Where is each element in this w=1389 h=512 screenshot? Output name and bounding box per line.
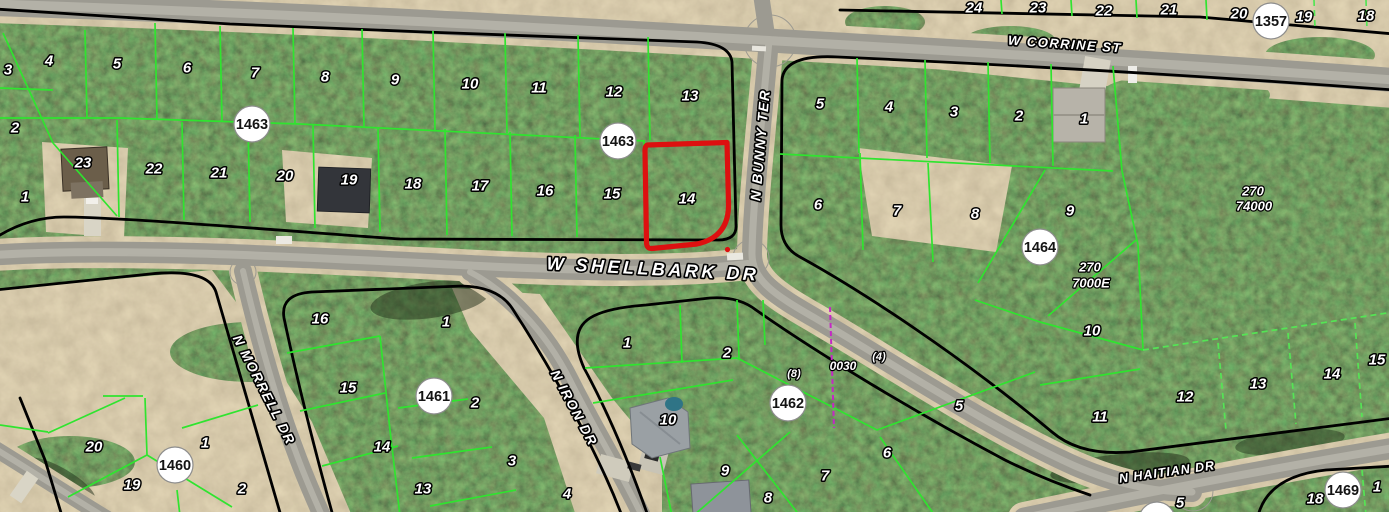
plat-marker-1462[interactable]: 1462 — [770, 385, 806, 421]
lot-number: 23 — [74, 155, 92, 172]
lot-number: 21 — [1160, 2, 1178, 19]
lot-number: 2 — [470, 395, 480, 412]
lot-number: 19 — [124, 477, 141, 494]
lot-number: 21 — [210, 165, 228, 182]
lot-number: 7 — [251, 65, 260, 82]
lot-number: 7 — [821, 468, 830, 485]
lot-number: 23 — [1029, 0, 1047, 17]
parcel-annotation: (4) — [872, 351, 886, 363]
lot-number: 15 — [604, 186, 621, 203]
plat-marker-label: 1462 — [772, 396, 804, 412]
lot-number: 10 — [1084, 323, 1101, 340]
lot-number: 8 — [764, 490, 773, 507]
lot-number: 4 — [884, 99, 894, 116]
lot-number: 13 — [415, 481, 432, 498]
lot-number: 16 — [312, 311, 329, 328]
lot-number: 22 — [1095, 3, 1113, 20]
plat-marker-label: 1464 — [1024, 240, 1056, 256]
lot-number: 12 — [1177, 389, 1194, 406]
lot-number: 13 — [1250, 376, 1267, 393]
lot-number: 1 — [1373, 479, 1381, 496]
plat-marker-label: 1469 — [1327, 483, 1359, 499]
lot-number: 17 — [472, 178, 489, 195]
parked-car — [276, 236, 292, 244]
lot-number: 13 — [682, 88, 699, 105]
lot-number: 12 — [606, 84, 623, 101]
lot-number: 8 — [321, 69, 330, 86]
plat-marker-1460[interactable]: 1460 — [157, 447, 193, 483]
lot-number: 15 — [1369, 352, 1386, 369]
lot-number: 1 — [21, 189, 29, 206]
parcel-annotation: (8) — [787, 368, 801, 380]
lot-number: 11 — [1092, 409, 1108, 426]
plat-marker-1464[interactable]: 1464 — [1022, 229, 1058, 265]
lot-number: 2 — [10, 120, 20, 137]
plat-marker-label: 1463 — [236, 117, 268, 133]
lot-number: 20 — [276, 168, 294, 185]
plat-marker-label: 1460 — [159, 458, 191, 474]
lot-number: 5 — [955, 398, 964, 415]
parcel-annotation: 0030 — [830, 359, 857, 373]
lot-number: 5 — [816, 96, 825, 113]
parcel-map-canvas[interactable]: W CORRINE STN BUNNY TERW SHELLBARK DRN M… — [0, 0, 1389, 512]
lot-number: 20 — [1230, 6, 1248, 23]
lot-number: 10 — [462, 76, 479, 93]
house-south — [691, 480, 751, 512]
plat-marker-1461[interactable]: 1461 — [416, 378, 452, 414]
lot-number: 18 — [1358, 8, 1375, 25]
parcel-corner-dot — [725, 247, 730, 252]
lot-number: 24 — [965, 0, 983, 17]
parked-truck — [1128, 66, 1137, 83]
lot-number: 14 — [679, 191, 696, 208]
lot-number: 4 — [44, 53, 54, 70]
pavement-mark — [727, 253, 743, 261]
lot-number: 6 — [883, 445, 892, 462]
lot-number: 1 — [1080, 111, 1088, 128]
lot-number: 18 — [1307, 491, 1324, 508]
lot-number: 11 — [531, 80, 547, 97]
plat-marker-1463[interactable]: 1463 — [234, 106, 270, 142]
lot-number: 2 — [1014, 108, 1024, 125]
lot-number: 9 — [1066, 203, 1075, 220]
lot-number: 1 — [442, 314, 450, 331]
lot-number: 6 — [183, 60, 192, 77]
lot-number: 3 — [950, 104, 959, 121]
lot-number: 1 — [623, 335, 631, 352]
lot-number: 2 — [722, 345, 732, 362]
lot-number: 20 — [85, 439, 103, 456]
plat-marker-label: 1461 — [418, 389, 450, 405]
lot-number: 5 — [1176, 495, 1185, 512]
map-wrap: W CORRINE STN BUNNY TERW SHELLBARK DRN M… — [0, 0, 1389, 512]
lot-number: 10 — [660, 412, 677, 429]
lot-number: 4 — [562, 486, 572, 503]
parcel-annotation: 270 — [1241, 184, 1264, 199]
lot-number: 14 — [1324, 366, 1341, 383]
lot-number: 5 — [113, 56, 122, 73]
pavement-mark — [752, 46, 766, 52]
lot-number: 9 — [391, 72, 400, 89]
lot-number: 14 — [374, 439, 391, 456]
lot-number: 15 — [340, 380, 357, 397]
lot-number: 7 — [893, 203, 902, 220]
lot-number: 19 — [1296, 9, 1313, 26]
plat-marker-label: 1463 — [602, 134, 634, 150]
swimming-pool — [665, 397, 683, 411]
lot-number: 16 — [537, 183, 554, 200]
lot-number: 6 — [814, 197, 823, 214]
lot-number: 8 — [971, 206, 980, 223]
lot-number: 3 — [4, 62, 13, 79]
plat-marker-1357[interactable]: 1357 — [1253, 3, 1289, 39]
parcel-annotation: 7000E — [1072, 276, 1110, 291]
plat-marker-1463[interactable]: 1463 — [600, 123, 636, 159]
parcel-annotation: 270 — [1078, 260, 1101, 275]
lot-number: 18 — [405, 176, 422, 193]
lot-number: 2 — [237, 481, 247, 498]
lot-number: 3 — [508, 453, 517, 470]
parcel-annotation: 74000 — [1236, 199, 1273, 214]
lot-number: 1 — [201, 435, 209, 452]
lot-number: 19 — [341, 172, 358, 189]
lot-number: 22 — [145, 161, 163, 178]
plat-marker-1469[interactable]: 1469 — [1325, 472, 1361, 508]
plat-marker-label: 1357 — [1255, 14, 1287, 30]
lot-number: 9 — [721, 463, 730, 480]
